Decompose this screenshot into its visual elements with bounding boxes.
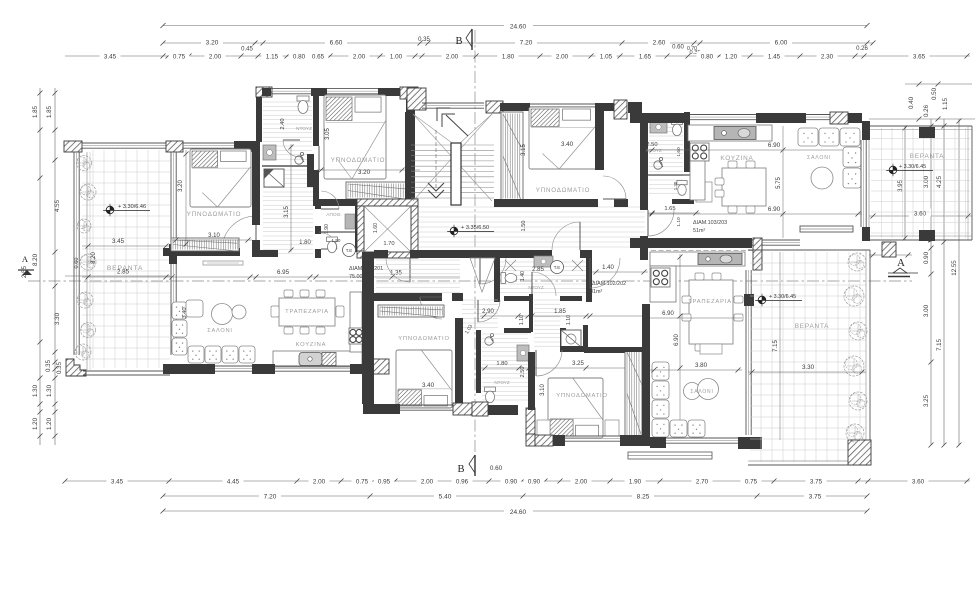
- svg-text:3.45: 3.45: [112, 238, 125, 245]
- svg-text:0.35: 0.35: [45, 359, 52, 372]
- svg-text:2.60: 2.60: [653, 40, 666, 47]
- svg-text:3.45: 3.45: [104, 54, 117, 61]
- svg-text:3.75: 3.75: [810, 479, 823, 486]
- svg-text:1.15: 1.15: [266, 54, 279, 61]
- svg-text:2.00: 2.00: [446, 54, 459, 61]
- svg-text:ΤΡΑΠΕΖΑΡΙΑ: ΤΡΑΠΕΖΑΡΙΑ: [688, 299, 732, 305]
- svg-text:2.85: 2.85: [532, 267, 544, 273]
- svg-text:1.50: 1.50: [521, 221, 527, 232]
- svg-text:0.90: 0.90: [505, 479, 518, 486]
- svg-text:0.40: 0.40: [908, 96, 915, 109]
- svg-text:51m²: 51m²: [693, 228, 705, 234]
- svg-text:3.80: 3.80: [695, 362, 708, 369]
- svg-text:3.40: 3.40: [182, 307, 188, 318]
- svg-text:1.00: 1.00: [390, 54, 403, 61]
- svg-text:3.30: 3.30: [54, 312, 61, 325]
- svg-text:0.90: 0.90: [528, 479, 541, 486]
- svg-text:1.85: 1.85: [554, 309, 566, 315]
- svg-text:7.15: 7.15: [936, 338, 943, 351]
- svg-text:3.45: 3.45: [111, 479, 124, 486]
- svg-text:1.30: 1.30: [46, 384, 53, 397]
- svg-text:3.40: 3.40: [422, 382, 435, 389]
- svg-text:1.05: 1.05: [600, 54, 613, 61]
- svg-text:8.20: 8.20: [91, 252, 97, 264]
- svg-text:ΥΠΝΟΔΩΜΑΤΙΟ: ΥΠΝΟΔΩΜΑΤΙΟ: [398, 336, 450, 342]
- svg-text:1.20: 1.20: [32, 417, 39, 430]
- svg-text:3.15: 3.15: [284, 206, 290, 218]
- svg-text:0.75: 0.75: [173, 54, 186, 61]
- svg-text:1.85: 1.85: [46, 105, 53, 118]
- svg-text:6.90: 6.90: [768, 206, 781, 213]
- svg-text:2.85: 2.85: [117, 269, 130, 276]
- svg-text:3.40: 3.40: [561, 141, 574, 148]
- svg-text:1.85: 1.85: [32, 105, 39, 118]
- svg-text:24.60: 24.60: [510, 24, 527, 31]
- svg-text:A: A: [22, 254, 29, 264]
- svg-text:0.26: 0.26: [856, 46, 868, 52]
- svg-text:ΣΑΛΟΝΙ: ΣΑΛΟΝΙ: [207, 328, 233, 334]
- svg-text:0.35: 0.35: [56, 361, 63, 374]
- svg-text:1.30: 1.30: [673, 181, 678, 190]
- svg-text:3.15: 3.15: [521, 144, 527, 156]
- svg-text:3.20: 3.20: [206, 40, 219, 47]
- svg-text:3.95: 3.95: [897, 179, 904, 192]
- svg-text:5.40: 5.40: [439, 494, 452, 501]
- svg-text:3.00: 3.00: [923, 304, 930, 317]
- svg-text:6.00: 6.00: [775, 40, 788, 47]
- svg-text:4.25: 4.25: [936, 175, 943, 188]
- svg-text:1.80: 1.80: [502, 54, 515, 61]
- svg-text:2.90: 2.90: [482, 309, 494, 315]
- svg-text:1.60: 1.60: [676, 147, 682, 157]
- svg-text:3.25: 3.25: [572, 361, 584, 367]
- svg-text:1.70: 1.70: [383, 241, 394, 247]
- svg-text:7.20: 7.20: [520, 40, 533, 47]
- svg-text:1.40: 1.40: [520, 271, 526, 281]
- svg-text:2.50: 2.50: [520, 367, 526, 378]
- svg-text:6.90: 6.90: [674, 334, 680, 346]
- svg-text:0.70: 0.70: [687, 46, 697, 52]
- svg-text:ΥΠΝΟΔΩΜΑΤΙΟ: ΥΠΝΟΔΩΜΑΤΙΟ: [536, 187, 590, 194]
- svg-text:7.20: 7.20: [264, 494, 277, 501]
- svg-text:0.95: 0.95: [378, 479, 391, 486]
- svg-text:1.20: 1.20: [725, 54, 738, 61]
- svg-text:2.00: 2.00: [313, 479, 326, 486]
- svg-text:1.40: 1.40: [602, 265, 614, 271]
- svg-text:ΝΤΟΥΖ: ΝΤΟΥΖ: [646, 148, 662, 153]
- svg-text:0.50: 0.50: [931, 87, 938, 100]
- svg-text:1.65: 1.65: [639, 54, 652, 61]
- svg-text:24.60: 24.60: [510, 509, 527, 516]
- svg-text:0.60: 0.60: [313, 188, 319, 198]
- svg-text:0.45: 0.45: [241, 47, 253, 53]
- svg-text:7.15: 7.15: [773, 340, 779, 352]
- svg-text:0.75: 0.75: [356, 479, 369, 486]
- svg-text:ΥΠΝΟΔΩΜΑΤΙΟ: ΥΠΝΟΔΩΜΑΤΙΟ: [556, 393, 608, 399]
- svg-text:A: A: [897, 257, 905, 269]
- svg-text:1.45: 1.45: [768, 54, 781, 61]
- svg-text:B: B: [457, 464, 464, 475]
- svg-text:1.30: 1.30: [32, 384, 39, 397]
- svg-text:B: B: [455, 36, 462, 47]
- svg-text:0.26: 0.26: [923, 104, 930, 117]
- svg-text:+ 3.35/6.50: + 3.35/6.50: [461, 225, 489, 231]
- svg-text:0.65: 0.65: [312, 54, 325, 61]
- svg-text:8.25: 8.25: [637, 494, 650, 501]
- svg-text:3.25: 3.25: [923, 394, 930, 407]
- svg-text:3.10: 3.10: [208, 233, 220, 239]
- svg-text:1.50: 1.50: [332, 238, 341, 243]
- svg-text:1.80: 1.80: [496, 361, 507, 367]
- svg-text:2.00: 2.00: [556, 54, 569, 61]
- svg-text:ΚΟΥΖΙΝΑ: ΚΟΥΖΙΝΑ: [296, 342, 327, 348]
- svg-text:81m²: 81m²: [590, 289, 602, 295]
- svg-text:2.70: 2.70: [696, 479, 709, 486]
- svg-text:ΥΠΝΟΔΩΜΑΤΙΟ: ΥΠΝΟΔΩΜΑΤΙΟ: [187, 211, 241, 218]
- svg-text:6.60: 6.60: [330, 40, 343, 47]
- svg-text:2.30: 2.30: [821, 54, 834, 61]
- svg-text:3.60: 3.60: [912, 479, 925, 486]
- svg-text:6.90: 6.90: [768, 142, 781, 149]
- svg-text:6.90: 6.90: [662, 311, 674, 317]
- svg-text:4.45: 4.45: [227, 479, 240, 486]
- svg-text:+ 3.30/6.46: + 3.30/6.46: [118, 204, 146, 210]
- svg-text:ΒΕΡΑΝΤΑ: ΒΕΡΑΝΤΑ: [910, 153, 944, 160]
- svg-text:ΥΠΝΟΔΩΜΑΤΙΟ: ΥΠΝΟΔΩΜΑΤΙΟ: [331, 157, 385, 164]
- svg-text:+ 3.30/6.45: + 3.30/6.45: [899, 164, 926, 170]
- svg-text:ΝΤΟΥΖ: ΝΤΟΥΖ: [296, 126, 312, 132]
- svg-text:1.80: 1.80: [299, 240, 311, 246]
- svg-text:3.20: 3.20: [178, 180, 184, 192]
- svg-text:6.95: 6.95: [277, 269, 290, 276]
- svg-text:2.00: 2.00: [575, 479, 588, 486]
- svg-text:1.15: 1.15: [942, 97, 949, 110]
- svg-text:ΣΑΛΟΝΙ: ΣΑΛΟΝΙ: [807, 155, 831, 161]
- svg-text:5.75: 5.75: [776, 177, 782, 189]
- svg-text:0.60: 0.60: [74, 258, 80, 269]
- svg-text:0.90: 0.90: [923, 251, 930, 264]
- svg-text:3.20: 3.20: [358, 169, 371, 176]
- svg-text:ΔΙΑΜ.103/203: ΔΙΑΜ.103/203: [693, 220, 727, 226]
- svg-text:T.E: T.E: [554, 265, 561, 270]
- svg-text:1.10: 1.10: [676, 217, 682, 227]
- svg-text:0.60: 0.60: [490, 465, 503, 472]
- svg-text:3.75: 3.75: [809, 494, 822, 501]
- svg-text:3.00: 3.00: [923, 175, 930, 188]
- svg-text:3.05: 3.05: [325, 128, 331, 140]
- svg-text:ΝΤΟΥΖ: ΝΤΟΥΖ: [528, 285, 544, 290]
- svg-text:+ 3.30/6.45: + 3.30/6.45: [769, 294, 796, 300]
- svg-text:1.20: 1.20: [46, 417, 53, 430]
- svg-text:3.65: 3.65: [913, 54, 926, 61]
- svg-text:1.65: 1.65: [664, 206, 675, 212]
- svg-text:2.00: 2.00: [421, 479, 434, 486]
- svg-text:2.00: 2.00: [353, 54, 366, 61]
- svg-text:1.90: 1.90: [629, 479, 642, 486]
- svg-text:2.00: 2.00: [209, 54, 222, 61]
- svg-text:T.E: T.E: [346, 248, 353, 253]
- svg-text:0.60: 0.60: [672, 45, 684, 51]
- svg-text:8.20: 8.20: [32, 253, 39, 266]
- svg-text:2.40: 2.40: [280, 118, 286, 129]
- svg-text:4.55: 4.55: [54, 199, 61, 212]
- svg-text:ΒΕΡΑΝΤΑ: ΒΕΡΑΝΤΑ: [795, 323, 829, 330]
- svg-text:ΔΙΑΜ.102/202: ΔΙΑΜ.102/202: [592, 281, 626, 287]
- svg-text:0.80: 0.80: [293, 54, 306, 61]
- svg-text:3.30: 3.30: [802, 364, 815, 371]
- svg-text:ΣΑΛΟΝΙ: ΣΑΛΟΝΙ: [690, 389, 713, 395]
- svg-text:ΤΡΑΠΕΖΑΡΙΑ: ΤΡΑΠΕΖΑΡΙΑ: [285, 309, 329, 315]
- svg-text:0.75: 0.75: [745, 479, 758, 486]
- svg-text:ΝΤΟΥΖ: ΝΤΟΥΖ: [494, 380, 510, 385]
- svg-text:0.96: 0.96: [456, 479, 469, 486]
- svg-text:0.80: 0.80: [701, 54, 714, 61]
- svg-text:1.10: 1.10: [566, 315, 572, 325]
- svg-text:0.35: 0.35: [418, 37, 430, 43]
- svg-text:3.60: 3.60: [914, 211, 927, 218]
- svg-text:12.55: 12.55: [951, 260, 958, 276]
- svg-text:ΑΠΟΘ.: ΑΠΟΘ.: [326, 212, 341, 218]
- svg-text:1.10: 1.10: [519, 315, 525, 325]
- svg-text:1.60: 1.60: [373, 223, 379, 233]
- svg-text:3.10: 3.10: [540, 384, 546, 396]
